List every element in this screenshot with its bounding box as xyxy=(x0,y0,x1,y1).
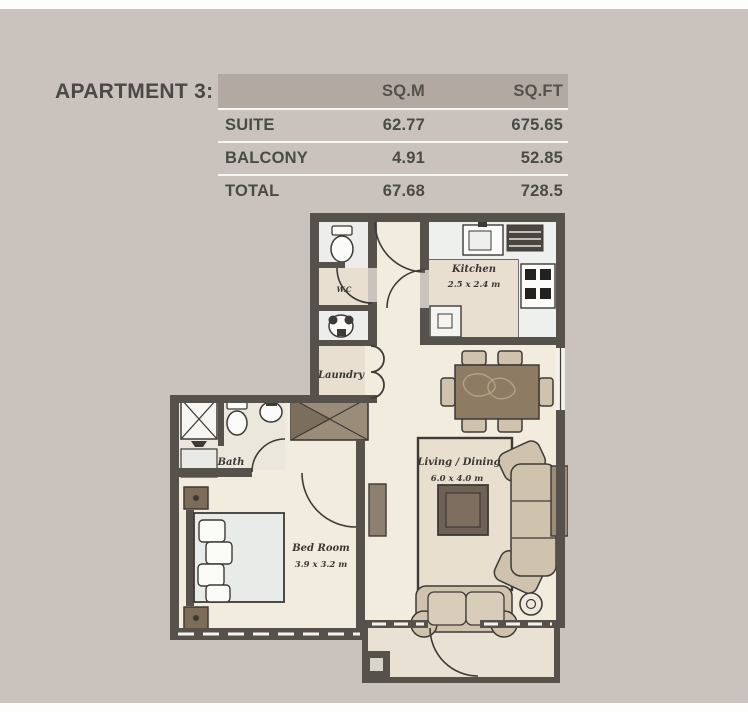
bath-toilet-icon xyxy=(227,411,247,435)
bedroom-dims: 3.9 x 3.2 m xyxy=(295,560,348,570)
wc-toilet-icon xyxy=(331,236,353,262)
wall-bath-bottom xyxy=(170,468,252,477)
loveseat-cushion xyxy=(428,592,466,625)
coffee-table-top xyxy=(446,493,480,527)
living-label: Living / Dining xyxy=(416,457,500,468)
wall-shower-divider xyxy=(218,398,224,446)
kitchen-dims: 2.5 x 2.4 m xyxy=(447,280,501,290)
vanity-drain xyxy=(337,329,346,336)
bedroom-label: Bed Room xyxy=(291,543,350,554)
table-header-row: SQ.M SQ.FT xyxy=(218,74,568,108)
pillow xyxy=(198,564,224,586)
sectional-sofa xyxy=(511,464,556,576)
suite-sqm: 62.77 xyxy=(348,116,430,135)
vanity-faucet xyxy=(345,316,354,325)
wall-wc-divider xyxy=(319,262,345,268)
dish-rack-icon xyxy=(507,225,543,251)
table-row-total: TOTAL 67.68 728.5 xyxy=(218,174,568,207)
header-sqft: SQ.FT xyxy=(430,82,568,101)
balcony-sqft: 52.85 xyxy=(430,149,568,168)
balcony-floor xyxy=(365,626,556,679)
tv-console xyxy=(369,484,386,536)
total-label: TOTAL xyxy=(218,182,348,201)
wall-vanity-bottom xyxy=(319,340,368,346)
wall-balcony-bottom xyxy=(362,677,560,683)
suite-sqft: 675.65 xyxy=(430,116,568,135)
pillow xyxy=(199,520,225,542)
dining-chair xyxy=(539,378,553,406)
wc-label: W.C xyxy=(337,285,352,294)
header-sqm: SQ.M xyxy=(348,82,430,101)
dining-chair xyxy=(498,351,522,365)
planter-inner xyxy=(370,658,383,671)
kitchen-label: Kitchen xyxy=(451,264,496,275)
top-margin-strip xyxy=(0,0,748,9)
wall-bath-top xyxy=(170,395,377,403)
wall-wc-right-b xyxy=(368,302,377,346)
dining-chair xyxy=(498,418,522,432)
kitchen-sink-basin xyxy=(469,231,491,250)
wall-balcony-left xyxy=(362,620,368,683)
entry-hall-floor xyxy=(377,222,420,348)
area-table: SQ.M SQ.FT SUITE 62.77 675.65 BALCONY 4.… xyxy=(218,74,568,207)
bed-headboard xyxy=(186,510,194,606)
balcony-sqm: 4.91 xyxy=(348,149,430,168)
laundry-label: Laundry xyxy=(317,370,365,381)
wall-vanity-top xyxy=(319,305,368,311)
side-table-lamp-icon xyxy=(520,593,542,615)
hall-closet xyxy=(291,398,368,440)
wall-kitchen-left-a xyxy=(420,222,429,270)
total-sqm: 67.68 xyxy=(348,182,430,201)
total-sqft: 728.5 xyxy=(430,182,568,201)
balcony-label: BALCONY xyxy=(218,149,348,168)
table-row-suite: SUITE 62.77 675.65 xyxy=(218,108,568,141)
wall-lower-left xyxy=(170,395,179,640)
bottom-margin-strip xyxy=(0,703,748,712)
kitchen-appliance xyxy=(430,306,461,337)
pillow xyxy=(206,585,230,602)
nightstand-knob xyxy=(193,615,199,621)
nightstand-knob xyxy=(193,495,199,501)
pillow xyxy=(206,542,232,564)
suite-label: SUITE xyxy=(218,116,348,135)
wall-kitchen-bottom xyxy=(420,337,565,345)
wc-toilet-tank xyxy=(332,226,352,235)
dining-chair xyxy=(462,418,486,432)
brochure-page: { "title": "APARTMENT 3:", "area_table":… xyxy=(0,0,748,712)
wall-top xyxy=(310,213,565,222)
dining-chair xyxy=(462,351,486,365)
bath-label: Bath xyxy=(217,457,245,468)
table-row-balcony: BALCONY 4.91 52.85 xyxy=(218,141,568,174)
dining-chair xyxy=(441,378,455,406)
vanity-faucet xyxy=(329,316,338,325)
wall-balcony-right xyxy=(554,628,560,683)
living-dims: 6.0 x 4.0 m xyxy=(431,474,484,484)
floorplan: Kitchen 2.5 x 2.4 m W.C Laundry Bath Bed… xyxy=(166,211,568,687)
wall-right xyxy=(556,213,565,628)
page-title: APARTMENT 3: xyxy=(55,76,215,108)
wall-bedroom-right xyxy=(356,440,365,628)
